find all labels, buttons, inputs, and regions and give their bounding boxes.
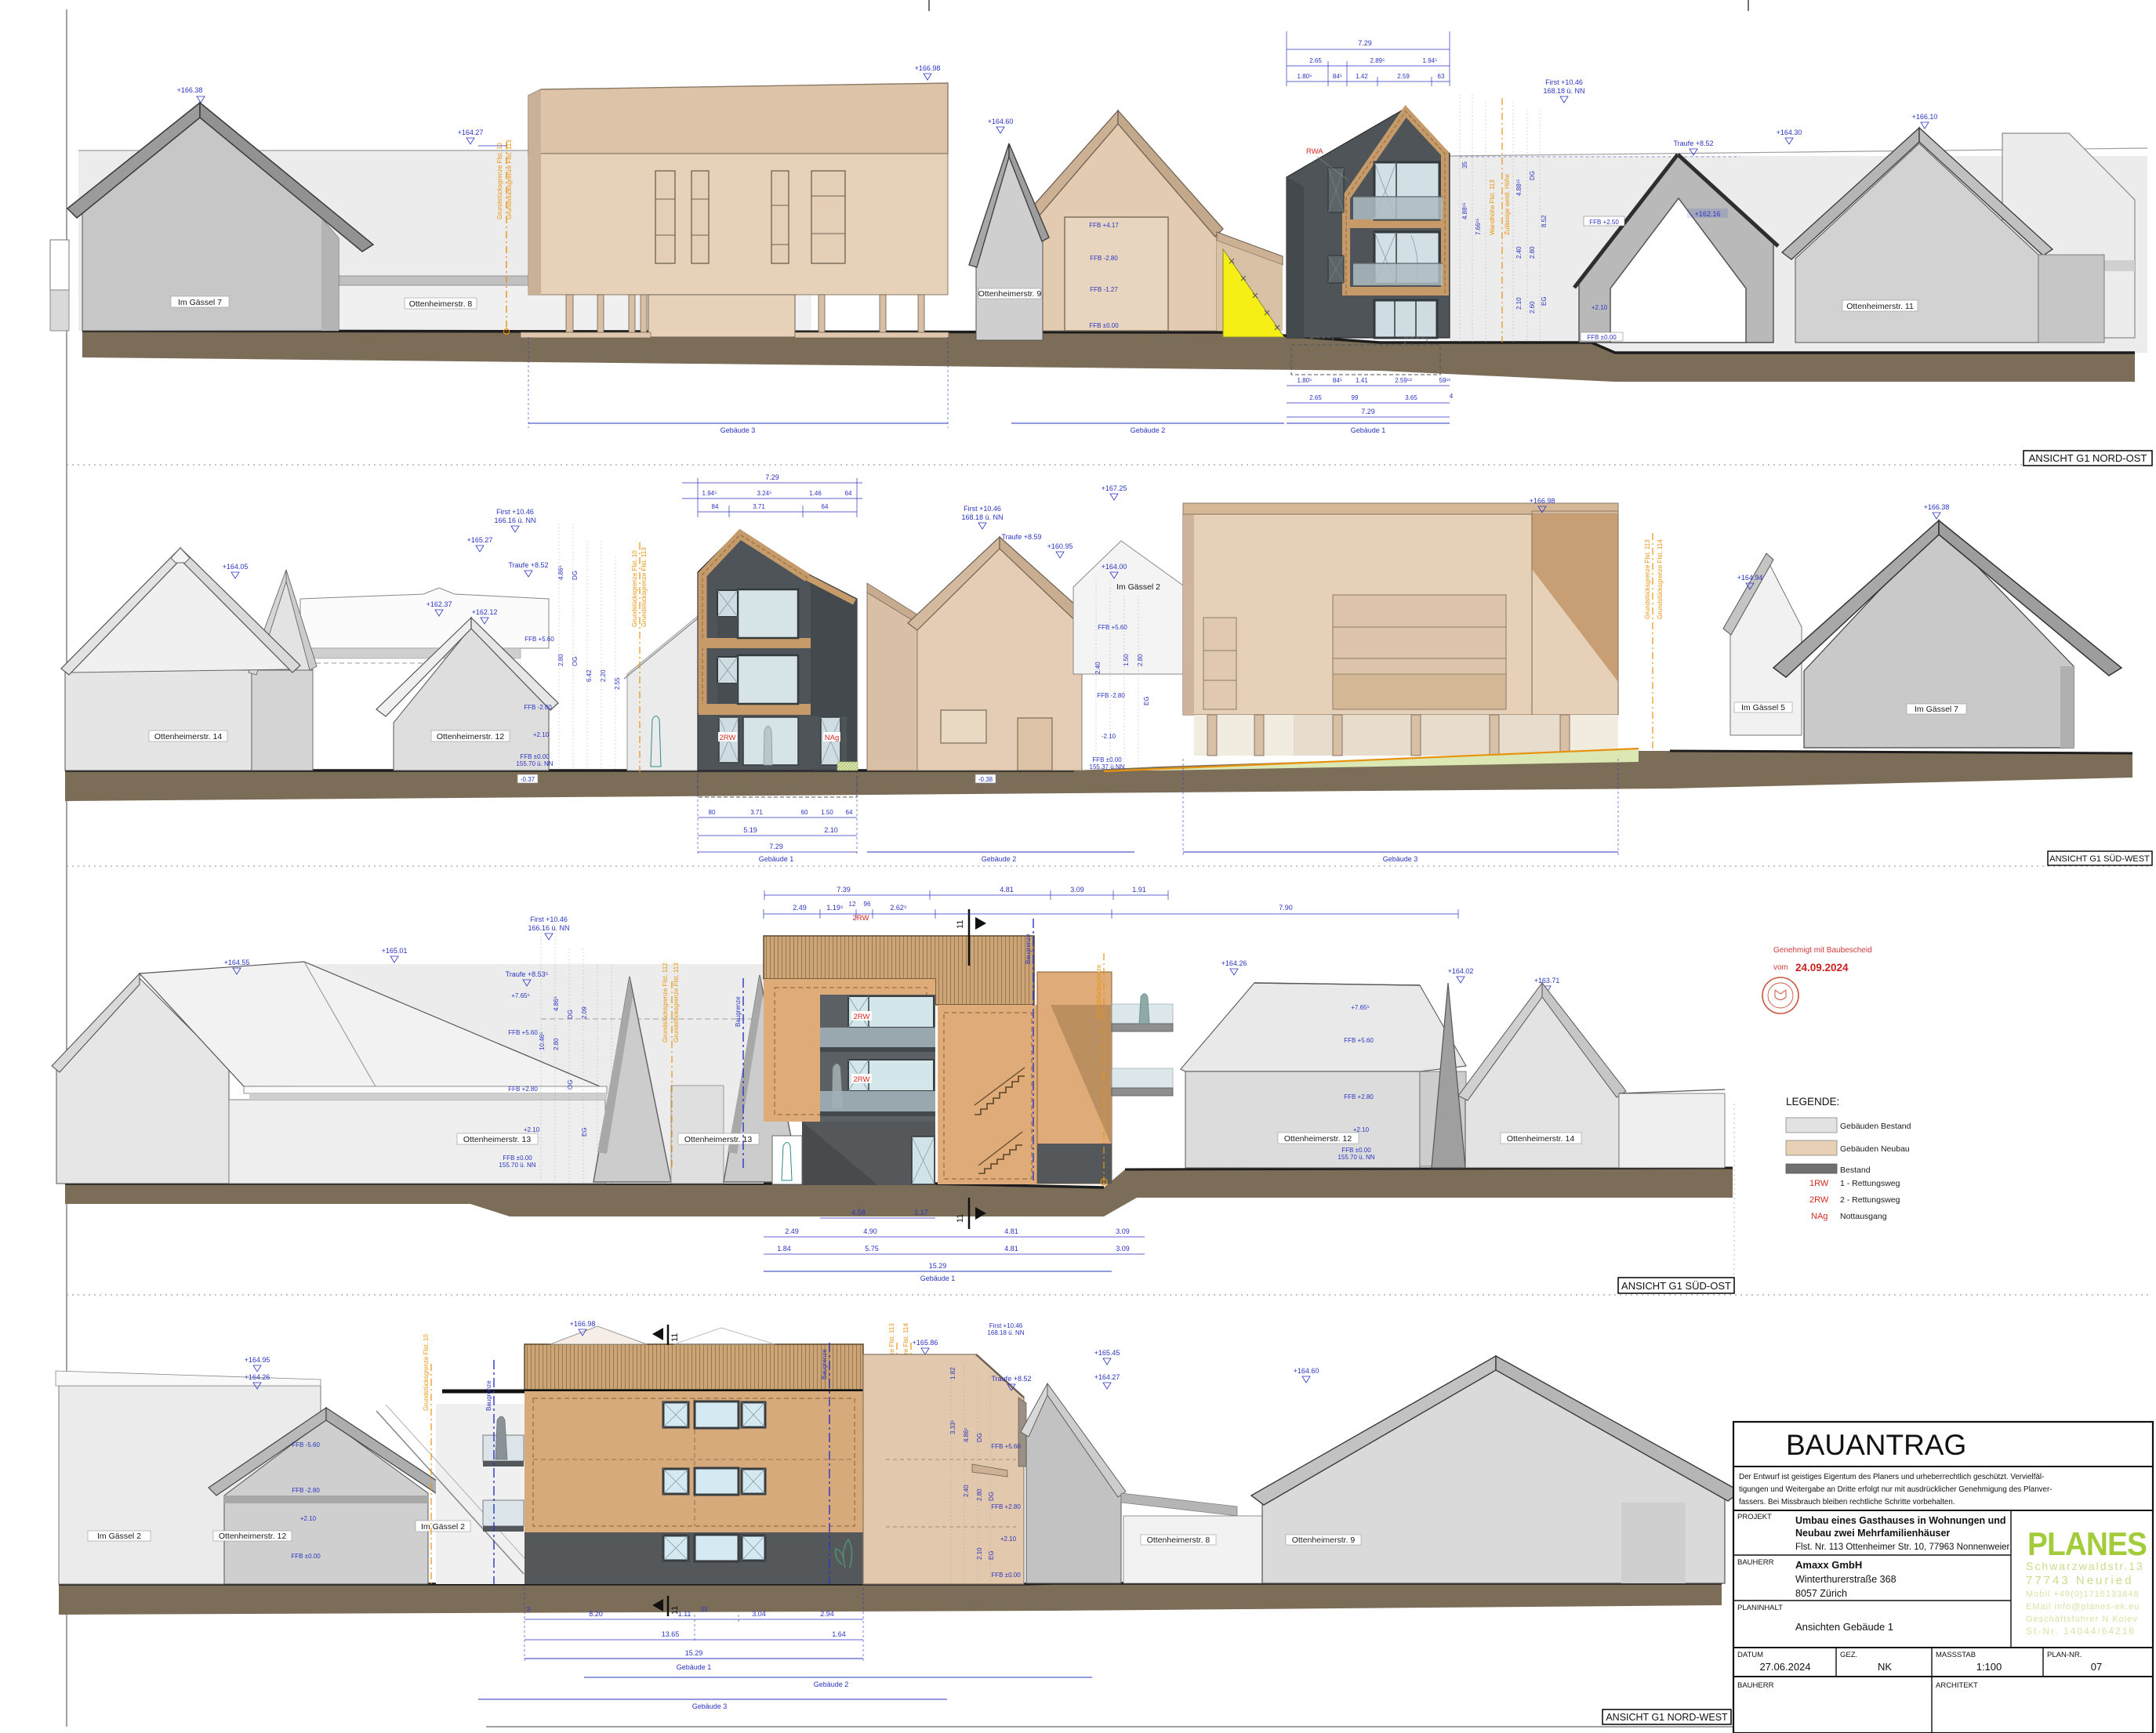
svg-text:Gebäuden Bestand: Gebäuden Bestand xyxy=(1840,1122,1911,1131)
svg-text:+165.27: +165.27 xyxy=(467,536,493,544)
svg-text:+164.26: +164.26 xyxy=(245,1373,270,1381)
svg-text:+166.38: +166.38 xyxy=(1924,503,1950,511)
svg-text:11: 11 xyxy=(956,920,965,929)
svg-text:1.80⁵: 1.80⁵ xyxy=(1298,377,1312,384)
svg-text:Traufe +8.53⁵: Traufe +8.53⁵ xyxy=(506,970,549,978)
svg-text:Ottenheimerstr. 11: Ottenheimerstr. 11 xyxy=(1846,302,1914,311)
svg-text:1:100: 1:100 xyxy=(1976,1661,2002,1673)
svg-text:Im Gässel 5: Im Gässel 5 xyxy=(1741,703,1785,712)
svg-text:Im Gässel 2: Im Gässel 2 xyxy=(421,1522,465,1532)
svg-text:4.81: 4.81 xyxy=(1000,886,1014,894)
svg-text:8.52: 8.52 xyxy=(1541,215,1548,227)
svg-text:166.16 ü. NN: 166.16 ü. NN xyxy=(528,924,569,932)
svg-text:FFB ±0.00: FFB ±0.00 xyxy=(520,753,550,760)
svg-text:+165.86: +165.86 xyxy=(913,1339,938,1347)
svg-text:64: 64 xyxy=(845,490,852,497)
svg-text:Zulässige westl. Höhe: Zulässige westl. Höhe xyxy=(1504,173,1511,235)
svg-text:33: 33 xyxy=(701,1606,708,1613)
svg-text:168.18 ü. NN: 168.18 ü. NN xyxy=(961,513,1003,521)
svg-text:Winterthurerstraße 368: Winterthurerstraße 368 xyxy=(1795,1574,1896,1585)
svg-text:+7.65⁵: +7.65⁵ xyxy=(511,992,530,999)
svg-text:tigungen und Weitergabe an Dr: tigungen und Weitergabe an Dritte erfolg… xyxy=(1739,1485,2053,1494)
svg-text:1.41: 1.41 xyxy=(1356,377,1368,384)
svg-text:Geschäftsführer N Kolev: Geschäftsführer N Kolev xyxy=(2026,1615,2138,1624)
svg-text:Gebäude 2: Gebäude 2 xyxy=(982,855,1017,863)
svg-text:Ansichten Gebäude 1: Ansichten Gebäude 1 xyxy=(1795,1621,1893,1633)
svg-text:3.24⁵: 3.24⁵ xyxy=(757,490,772,497)
svg-text:FFB ±0.00: FFB ±0.00 xyxy=(503,1155,532,1162)
svg-text:Grundstücksgrenze Flst. 112: Grundstücksgrenze Flst. 112 xyxy=(662,963,669,1042)
svg-text:GEZ.: GEZ. xyxy=(1840,1651,1857,1659)
svg-text:+164.60: +164.60 xyxy=(988,118,1014,125)
svg-text:1.50: 1.50 xyxy=(1123,654,1130,666)
svg-text:4.88¹⁵: 4.88¹⁵ xyxy=(1461,202,1468,219)
svg-text:1.17: 1.17 xyxy=(914,1209,928,1216)
svg-text:1.94⁵: 1.94⁵ xyxy=(702,490,717,497)
svg-text:2.40: 2.40 xyxy=(963,1485,970,1497)
svg-text:Mobil +49(0)1715133848: Mobil +49(0)1715133848 xyxy=(2026,1590,2140,1599)
svg-text:4.88¹⁵: 4.88¹⁵ xyxy=(1515,179,1523,196)
svg-text:ARCHITEKT: ARCHITEKT xyxy=(1936,1681,1978,1690)
svg-text:+167.25: +167.25 xyxy=(1102,484,1127,492)
svg-text:+164.95: +164.95 xyxy=(245,1356,270,1364)
svg-text:1 - Rettungsweg: 1 - Rettungsweg xyxy=(1840,1179,1900,1188)
svg-text:vom: vom xyxy=(1773,963,1788,972)
svg-text:3: 3 xyxy=(527,1606,531,1613)
svg-text:11: 11 xyxy=(670,1333,680,1342)
svg-text:LEGENDE:: LEGENDE: xyxy=(1786,1096,1839,1108)
svg-text:1.94⁵: 1.94⁵ xyxy=(1423,57,1438,64)
svg-text:2RW: 2RW xyxy=(1809,1195,1829,1205)
svg-text:ANSICHT G1 SÜD-WEST: ANSICHT G1 SÜD-WEST xyxy=(2049,854,2150,864)
svg-text:Baugrenze: Baugrenze xyxy=(485,1380,492,1411)
svg-text:Umbau eines Gasthauses in Wohn: Umbau eines Gasthauses in Wohnungen und xyxy=(1795,1515,2006,1526)
svg-text:3.33¹: 3.33¹ xyxy=(949,1419,956,1434)
svg-text:FFB -2.80: FFB -2.80 xyxy=(1097,692,1125,699)
svg-text:2RW: 2RW xyxy=(854,1013,870,1021)
svg-text:1.42: 1.42 xyxy=(1356,73,1368,80)
svg-text:Baugrenze: Baugrenze xyxy=(735,996,742,1027)
svg-text:FFB ±0.00: FFB ±0.00 xyxy=(1089,322,1119,329)
svg-text:1RW: 1RW xyxy=(1809,1179,1829,1188)
svg-text:PLANES: PLANES xyxy=(2027,1525,2147,1562)
svg-text:FFB +2.80: FFB +2.80 xyxy=(508,1086,538,1093)
svg-text:155.70 ü. NN: 155.70 ü. NN xyxy=(1338,1154,1374,1161)
svg-text:13.65: 13.65 xyxy=(662,1630,680,1638)
svg-text:ANSICHT G1 NORD-WEST: ANSICHT G1 NORD-WEST xyxy=(1606,1712,1728,1723)
svg-text:1.11: 1.11 xyxy=(678,1610,691,1618)
svg-text:Flst. Nr. 113 Ottenheimer Str: Flst. Nr. 113 Ottenheimer Str. 10, 77963… xyxy=(1795,1543,2010,1552)
svg-text:FFB +2.80: FFB +2.80 xyxy=(991,1503,1021,1510)
svg-text:Grundstücksgrenze: Grundstücksgrenze xyxy=(1095,964,1102,1019)
svg-text:+162.12: +162.12 xyxy=(472,608,498,616)
svg-text:7.66¹⁵: 7.66¹⁵ xyxy=(1475,218,1482,235)
svg-text:84⁵: 84⁵ xyxy=(1333,73,1342,80)
svg-text:+164.05: +164.05 xyxy=(223,563,249,571)
svg-text:99: 99 xyxy=(1352,394,1359,401)
svg-text:Baugrenze: Baugrenze xyxy=(821,1349,828,1380)
svg-text:1.64: 1.64 xyxy=(832,1630,846,1638)
svg-text:FFB ±0.00: FFB ±0.00 xyxy=(1092,756,1122,763)
svg-text:+2.10: +2.10 xyxy=(1592,304,1608,311)
svg-text:1.19⁵: 1.19⁵ xyxy=(826,904,844,912)
svg-text:NK: NK xyxy=(1878,1661,1892,1673)
svg-text:84: 84 xyxy=(712,503,719,510)
svg-text:6.42: 6.42 xyxy=(586,669,593,682)
svg-text:5.75: 5.75 xyxy=(865,1245,879,1253)
svg-text:FFB +2.80: FFB +2.80 xyxy=(1344,1093,1374,1100)
svg-text:1.91: 1.91 xyxy=(1132,886,1146,894)
svg-text:Traufe +8.52: Traufe +8.52 xyxy=(992,1375,1032,1383)
svg-text:7.29: 7.29 xyxy=(765,473,779,481)
svg-text:4.90: 4.90 xyxy=(863,1227,877,1235)
svg-text:Traufe +8.52: Traufe +8.52 xyxy=(1674,140,1714,147)
svg-text:-0.38: -0.38 xyxy=(978,776,993,783)
svg-text:2.80: 2.80 xyxy=(557,654,564,666)
svg-text:BAUANTRAG: BAUANTRAG xyxy=(1786,1429,1966,1461)
svg-text:Ottenheimerstr. 9: Ottenheimerstr. 9 xyxy=(1292,1535,1356,1545)
svg-text:+166.98: +166.98 xyxy=(570,1320,596,1328)
svg-text:Gebäuden Neubau: Gebäuden Neubau xyxy=(1840,1144,1910,1154)
svg-text:2.55: 2.55 xyxy=(614,677,621,690)
svg-text:RWA: RWA xyxy=(1306,147,1323,156)
svg-text:DG: DG xyxy=(572,571,579,580)
svg-text:FFB -2.80: FFB -2.80 xyxy=(524,704,552,711)
svg-text:27.06.2024: 27.06.2024 xyxy=(1759,1661,1810,1673)
svg-text:11: 11 xyxy=(956,1214,965,1223)
svg-text:35: 35 xyxy=(1461,161,1468,169)
svg-text:2.94: 2.94 xyxy=(820,1610,834,1618)
svg-text:3.09: 3.09 xyxy=(1116,1227,1130,1235)
svg-text:Ottenheimerstr. 12: Ottenheimerstr. 12 xyxy=(1284,1134,1352,1144)
svg-text:1.46: 1.46 xyxy=(809,490,822,497)
svg-text:77743 Neuried: 77743 Neuried xyxy=(2026,1574,2133,1587)
svg-text:BAUHERR: BAUHERR xyxy=(1737,1681,1774,1690)
svg-text:PLANINHALT: PLANINHALT xyxy=(1737,1604,1783,1612)
svg-text:+166.38: +166.38 xyxy=(177,86,203,94)
svg-text:+165.45: +165.45 xyxy=(1094,1349,1120,1357)
svg-text:07: 07 xyxy=(2091,1661,2102,1673)
svg-text:7.29: 7.29 xyxy=(1361,408,1375,415)
svg-text:First +10.46: First +10.46 xyxy=(964,505,1001,513)
svg-text:155.37 ü.NN: 155.37 ü.NN xyxy=(1090,763,1125,770)
svg-text:7.29: 7.29 xyxy=(1358,39,1372,47)
svg-text:2.09: 2.09 xyxy=(581,1006,588,1019)
svg-text:FFB +5.60: FFB +5.60 xyxy=(524,636,554,643)
svg-text:+164.60: +164.60 xyxy=(1294,1367,1319,1375)
svg-text:Nottausgang: Nottausgang xyxy=(1840,1212,1887,1221)
svg-text:4.58: 4.58 xyxy=(851,1209,866,1216)
svg-text:FFB +5.60: FFB +5.60 xyxy=(1098,624,1127,631)
svg-text:+160.95: +160.95 xyxy=(1047,542,1073,550)
svg-text:FFB -5.60: FFB -5.60 xyxy=(292,1441,320,1448)
svg-text:+164.55: +164.55 xyxy=(224,959,250,966)
svg-text:+2.10: +2.10 xyxy=(533,731,550,738)
svg-text:3.71: 3.71 xyxy=(753,503,765,510)
svg-text:+2.10: +2.10 xyxy=(1000,1535,1017,1543)
svg-text:NAg: NAg xyxy=(825,734,839,742)
svg-text:DATUM: DATUM xyxy=(1737,1651,1763,1659)
svg-text:8057 Zürich: 8057 Zürich xyxy=(1795,1588,1847,1599)
svg-text:8.20: 8.20 xyxy=(589,1610,603,1618)
svg-text:12: 12 xyxy=(849,901,856,908)
svg-text:FFB +4.17: FFB +4.17 xyxy=(1089,222,1119,229)
svg-text:24.09.2024: 24.09.2024 xyxy=(1795,962,1849,973)
svg-text:2RW: 2RW xyxy=(853,914,869,923)
svg-text:Traufe +8.59: Traufe +8.59 xyxy=(1002,533,1042,541)
svg-text:2.10: 2.10 xyxy=(824,826,838,834)
svg-text:63: 63 xyxy=(1438,73,1445,80)
svg-text:Grundstücksgrenze Flst. 10: Grundstücksgrenze Flst. 10 xyxy=(631,550,638,627)
svg-text:168.18 ü. NN: 168.18 ü. NN xyxy=(987,1329,1024,1336)
svg-text:DG: DG xyxy=(988,1492,995,1501)
svg-text:+2.10: +2.10 xyxy=(300,1515,317,1522)
svg-text:59¹⁶: 59¹⁶ xyxy=(1439,377,1451,384)
svg-text:155.70 ü. NN: 155.70 ü. NN xyxy=(516,760,553,767)
svg-text:Genehmigt mit Baubescheid: Genehmigt mit Baubescheid xyxy=(1773,946,1872,955)
svg-text:10.46⁵: 10.46⁵ xyxy=(539,1032,546,1050)
svg-text:First +10.46: First +10.46 xyxy=(1545,78,1583,86)
svg-text:-2.10: -2.10 xyxy=(1102,733,1116,740)
svg-text:2.60: 2.60 xyxy=(1529,301,1536,314)
svg-text:DG: DG xyxy=(1529,171,1536,180)
svg-text:3.65: 3.65 xyxy=(1405,394,1417,401)
svg-text:+165.01: +165.01 xyxy=(382,947,408,955)
svg-text:Ottenheimerstr. 13: Ottenheimerstr. 13 xyxy=(463,1135,532,1144)
svg-text:3.09: 3.09 xyxy=(1070,886,1084,894)
svg-text:+164.27: +164.27 xyxy=(458,129,484,136)
svg-text:Gebäude 2: Gebäude 2 xyxy=(1131,426,1166,434)
svg-text:Schwarzwaldstr.13: Schwarzwaldstr.13 xyxy=(2026,1560,2144,1572)
svg-text:84⁵: 84⁵ xyxy=(1333,377,1342,384)
svg-text:Ottenheimerstr. 12: Ottenheimerstr. 12 xyxy=(437,732,505,741)
svg-text:2RW: 2RW xyxy=(854,1075,870,1084)
svg-text:3.71: 3.71 xyxy=(750,809,763,816)
svg-text:60: 60 xyxy=(801,809,808,816)
svg-text:Im Gässel 2: Im Gässel 2 xyxy=(97,1532,141,1541)
svg-text:168.18 ü. NN: 168.18 ü. NN xyxy=(1543,87,1584,95)
svg-text:2.59⁵²: 2.59⁵² xyxy=(1395,377,1412,384)
svg-text:Baugrenze: Baugrenze xyxy=(1025,934,1032,964)
svg-text:Gebäude 1: Gebäude 1 xyxy=(677,1663,712,1671)
svg-text:PROJEKT: PROJEKT xyxy=(1737,1513,1772,1521)
svg-text:2.62⁵: 2.62⁵ xyxy=(890,904,907,912)
svg-text:2.49: 2.49 xyxy=(785,1227,799,1235)
svg-text:MASSSTAB: MASSSTAB xyxy=(1936,1651,1976,1659)
svg-text:Der Entwurf ist geistiges Eige: Der Entwurf ist geistiges Eigentum des P… xyxy=(1739,1473,2044,1481)
svg-text:Gebäude 2: Gebäude 2 xyxy=(814,1680,849,1688)
svg-text:ANSICHT G1 SÜD-OST: ANSICHT G1 SÜD-OST xyxy=(1621,1280,1731,1292)
svg-text:OG: OG xyxy=(572,657,579,666)
svg-text:Ottenheimerstr. 12: Ottenheimerstr. 12 xyxy=(219,1532,287,1541)
svg-text:3.04: 3.04 xyxy=(752,1610,766,1618)
svg-text:OG: OG xyxy=(567,1080,574,1089)
svg-text:1.84: 1.84 xyxy=(777,1245,791,1253)
svg-text:7.29: 7.29 xyxy=(769,843,783,850)
svg-text:FFB +5.60: FFB +5.60 xyxy=(1344,1037,1374,1044)
svg-text:2.10: 2.10 xyxy=(976,1547,983,1560)
svg-text:-0.37: -0.37 xyxy=(521,776,535,783)
svg-text:2.40: 2.40 xyxy=(1094,662,1102,674)
svg-text:2RW: 2RW xyxy=(720,734,736,742)
svg-text:Gebäude 1: Gebäude 1 xyxy=(920,1274,956,1282)
svg-text:1.82: 1.82 xyxy=(949,1367,956,1380)
svg-text:St-Nr. 14044/64216: St-Nr. 14044/64216 xyxy=(2026,1626,2136,1637)
svg-text:First +10.46: First +10.46 xyxy=(989,1322,1023,1329)
svg-text:Ottenheimerstr. 14: Ottenheimerstr. 14 xyxy=(154,732,223,741)
svg-text:2.40: 2.40 xyxy=(1515,246,1523,259)
svg-text:11: 11 xyxy=(670,1606,680,1615)
svg-text:Grundstücksgrenze Flst. 113: Grundstücksgrenze Flst. 113 xyxy=(506,140,513,219)
svg-text:7.90: 7.90 xyxy=(1279,904,1293,912)
svg-text:Gebäude 1: Gebäude 1 xyxy=(1351,426,1386,434)
svg-text:EG: EG xyxy=(1541,296,1548,306)
svg-text:2.59: 2.59 xyxy=(1397,73,1410,80)
svg-text:4.81: 4.81 xyxy=(1004,1227,1018,1235)
svg-text:FFB ±0.00: FFB ±0.00 xyxy=(291,1553,321,1560)
svg-text:Grundstücksgrenze Flst. 113: Grundstücksgrenze Flst. 113 xyxy=(641,547,648,627)
svg-text:2.80: 2.80 xyxy=(553,1038,560,1050)
svg-text:Grundstücksgrenze Flst. 113: Grundstücksgrenze Flst. 113 xyxy=(673,963,680,1042)
svg-text:+164.30: +164.30 xyxy=(1777,129,1802,136)
svg-text:PLAN-NR.: PLAN-NR. xyxy=(2047,1651,2082,1659)
svg-text:+2.10: +2.10 xyxy=(1353,1126,1370,1133)
svg-text:+164.02: +164.02 xyxy=(1448,967,1474,975)
svg-text:4.81: 4.81 xyxy=(1004,1245,1018,1253)
svg-text:2.65: 2.65 xyxy=(1309,57,1322,64)
svg-text:+164.26: +164.26 xyxy=(1221,959,1247,967)
svg-text:EG: EG xyxy=(581,1127,588,1137)
svg-text:ANSICHT G1 NORD-OST: ANSICHT G1 NORD-OST xyxy=(2029,452,2147,464)
svg-text:Traufe +8.52: Traufe +8.52 xyxy=(509,561,549,569)
svg-text:+166.10: +166.10 xyxy=(1912,113,1938,121)
svg-text:+164.27: +164.27 xyxy=(1094,1373,1120,1381)
svg-text:2.80: 2.80 xyxy=(1529,246,1536,259)
svg-text:7.39: 7.39 xyxy=(837,886,851,894)
svg-text:FFB -2.80: FFB -2.80 xyxy=(292,1487,320,1494)
svg-text:Gebäude 3: Gebäude 3 xyxy=(692,1702,728,1710)
svg-text:Ottenheimerstr. 14: Ottenheimerstr. 14 xyxy=(1507,1134,1575,1144)
svg-text:FFB +2.50: FFB +2.50 xyxy=(1589,219,1619,226)
svg-text:2 - Rettungsweg: 2 - Rettungsweg xyxy=(1840,1195,1900,1205)
svg-text:FFB -2.80: FFB -2.80 xyxy=(1090,255,1118,262)
svg-text:+162.37: +162.37 xyxy=(426,600,452,608)
svg-text:Ottenheimerstr. 9: Ottenheimerstr. 9 xyxy=(978,289,1042,299)
svg-text:Ottenheimerstr. 8: Ottenheimerstr. 8 xyxy=(1147,1535,1210,1545)
svg-text:155.70 ü. NN: 155.70 ü. NN xyxy=(499,1162,535,1169)
svg-text:EG: EG xyxy=(988,1550,995,1560)
svg-text:4: 4 xyxy=(1450,393,1454,400)
svg-text:Neubau zwei Mehrfamilienhäuser: Neubau zwei Mehrfamilienhäuser xyxy=(1795,1528,1950,1539)
svg-text:4.86⁵: 4.86⁵ xyxy=(553,996,560,1011)
svg-text:Grundstücksgrenze Flst. 114: Grundstücksgrenze Flst. 114 xyxy=(1657,539,1664,619)
svg-text:+7.65⁵: +7.65⁵ xyxy=(1351,1004,1370,1011)
svg-text:BAUHERR: BAUHERR xyxy=(1737,1558,1774,1567)
svg-text:+166.98: +166.98 xyxy=(915,64,941,72)
svg-text:Gebäude 1: Gebäude 1 xyxy=(759,855,794,863)
svg-text:2.65: 2.65 xyxy=(1309,394,1322,401)
svg-text:FFB ±0.00: FFB ±0.00 xyxy=(1341,1147,1371,1154)
svg-text:+164.00: +164.00 xyxy=(1102,563,1127,571)
svg-text:EMail infο@planes-ek.eu: EMail infο@planes-ek.eu xyxy=(2026,1602,2140,1612)
svg-text:NAg: NAg xyxy=(1811,1212,1828,1221)
svg-text:FFB +5.60: FFB +5.60 xyxy=(508,1029,538,1036)
svg-text:2.80: 2.80 xyxy=(1137,654,1144,666)
svg-text:96: 96 xyxy=(864,901,871,908)
svg-text:Grundstücksgrenze Flst. 113: Grundstücksgrenze Flst. 113 xyxy=(1644,539,1651,619)
svg-text:Gebäude 3: Gebäude 3 xyxy=(720,426,756,434)
svg-text:Gebäude 3: Gebäude 3 xyxy=(1383,855,1418,863)
svg-text:+162.16: +162.16 xyxy=(1695,210,1721,218)
svg-text:2.49: 2.49 xyxy=(793,904,807,912)
svg-text:166.16 ü. NN: 166.16 ü. NN xyxy=(494,517,535,524)
svg-text:fassers. Bei Missbrauch bleibe: fassers. Bei Missbrauch bleiben rechtlic… xyxy=(1739,1498,1955,1506)
svg-text:4.86⁵: 4.86⁵ xyxy=(557,565,564,580)
svg-text:Amaxx GmbH: Amaxx GmbH xyxy=(1795,1559,1862,1571)
svg-text:First +10.46: First +10.46 xyxy=(496,508,534,516)
svg-text:Ottenheimerstr. 13: Ottenheimerstr. 13 xyxy=(684,1135,753,1144)
svg-text:80: 80 xyxy=(709,809,716,816)
svg-text:Grundstücksgrenze Flst. 10: Grundstücksgrenze Flst. 10 xyxy=(496,143,503,219)
svg-text:Ottenheimerstr. 8: Ottenheimerstr. 8 xyxy=(409,299,473,309)
svg-text:First +10.46: First +10.46 xyxy=(530,915,568,923)
svg-text:Im Gässel 7: Im Gässel 7 xyxy=(178,298,222,307)
svg-text:15.29: 15.29 xyxy=(685,1649,703,1657)
svg-text:+2.10: +2.10 xyxy=(524,1126,540,1133)
svg-text:FFB +5.60: FFB +5.60 xyxy=(991,1443,1021,1450)
svg-text:EG: EG xyxy=(1143,696,1150,705)
svg-text:64: 64 xyxy=(822,503,829,510)
svg-text:+164.94: +164.94 xyxy=(1737,574,1763,582)
svg-text:DG: DG xyxy=(567,1010,574,1019)
svg-text:2.89⁵: 2.89⁵ xyxy=(1370,57,1385,64)
svg-text:3.09: 3.09 xyxy=(1116,1245,1130,1253)
svg-text:Im Gässel 7: Im Gässel 7 xyxy=(1915,705,1958,714)
svg-text:DG: DG xyxy=(976,1433,983,1442)
svg-text:2.10: 2.10 xyxy=(1515,297,1523,310)
svg-text:+166.98: +166.98 xyxy=(1530,497,1555,505)
svg-text:FFB -1.27: FFB -1.27 xyxy=(1090,286,1118,293)
svg-text:Bestand: Bestand xyxy=(1840,1166,1871,1175)
svg-text:2.20: 2.20 xyxy=(600,669,607,682)
svg-text:Wandhöhe Flst. 113: Wandhöhe Flst. 113 xyxy=(1489,179,1496,235)
svg-text:1.80⁵: 1.80⁵ xyxy=(1298,73,1312,80)
svg-text:5.19: 5.19 xyxy=(743,826,757,834)
svg-text:64: 64 xyxy=(846,809,853,816)
svg-text:4.86¹: 4.86¹ xyxy=(963,1427,970,1442)
svg-text:1.50: 1.50 xyxy=(821,809,833,816)
svg-text:FFB ±0.00: FFB ±0.00 xyxy=(1587,334,1617,341)
svg-text:+163.71: +163.71 xyxy=(1534,977,1560,984)
svg-text:FFB ±0.00: FFB ±0.00 xyxy=(991,1572,1021,1579)
svg-text:2.80: 2.80 xyxy=(976,1488,983,1501)
svg-text:Im Gässel 2: Im Gässel 2 xyxy=(1116,582,1160,592)
svg-text:15.29: 15.29 xyxy=(929,1262,947,1270)
svg-text:Grundstücksgrenze Flst. 10: Grundstücksgrenze Flst. 10 xyxy=(423,1334,430,1411)
